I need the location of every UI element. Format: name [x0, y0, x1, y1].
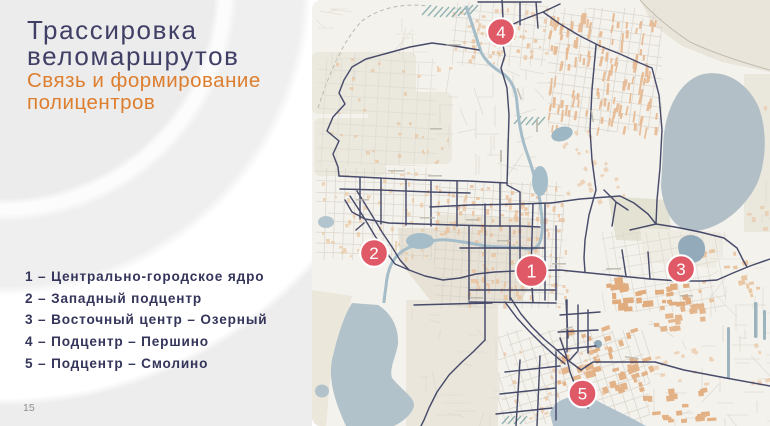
svg-text:5: 5: [578, 385, 587, 404]
svg-text:4: 4: [496, 23, 505, 42]
svg-text:1: 1: [526, 262, 536, 282]
svg-text:3: 3: [676, 260, 685, 279]
svg-text:2: 2: [369, 244, 378, 263]
